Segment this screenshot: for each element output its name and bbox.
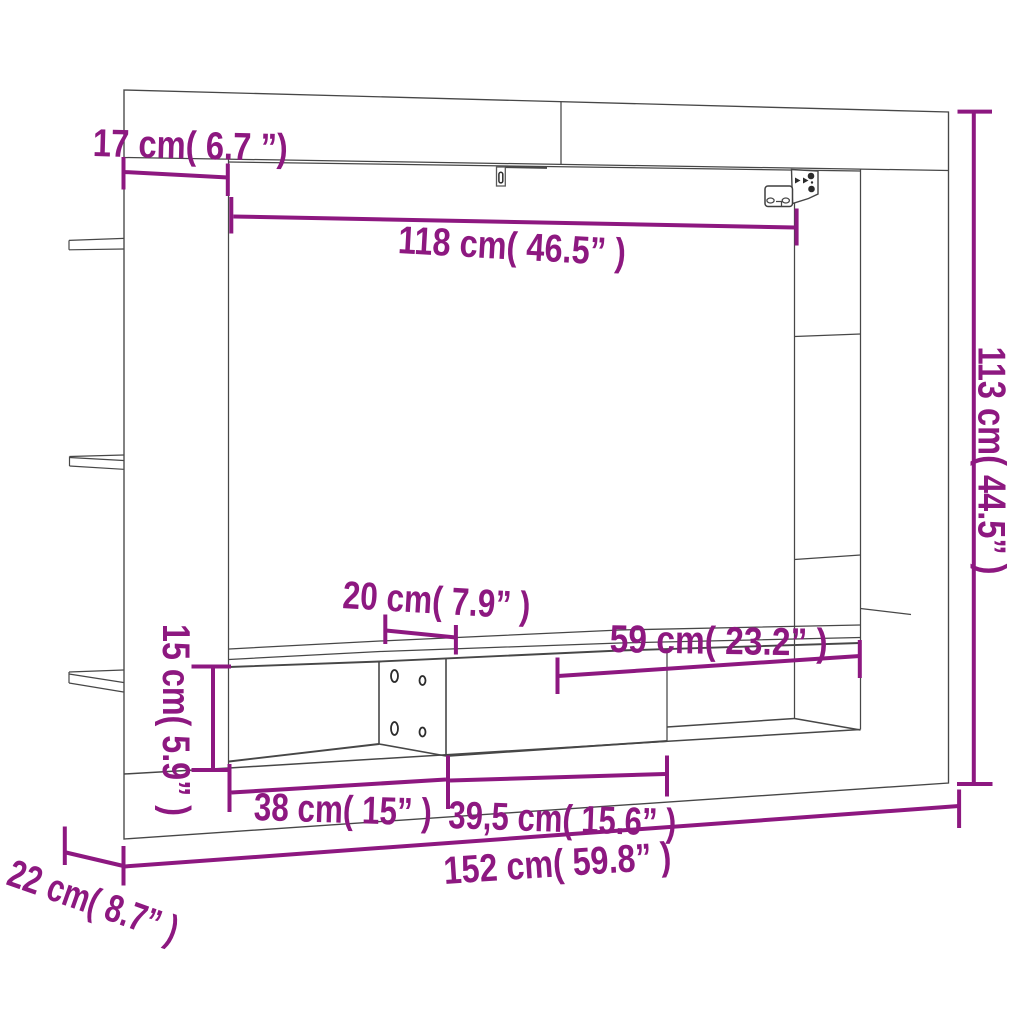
svg-text:15 cm( 5.9” ): 15 cm( 5.9” )	[154, 624, 197, 816]
svg-text:38 cm( 15” ): 38 cm( 15” )	[253, 786, 432, 835]
svg-text:59 cm( 23.2” ): 59 cm( 23.2” )	[609, 618, 828, 665]
svg-text:17 cm( 6.7 ”): 17 cm( 6.7 ”)	[92, 122, 288, 170]
svg-text:113 cm( 44.5” ): 113 cm( 44.5” )	[970, 347, 1013, 575]
